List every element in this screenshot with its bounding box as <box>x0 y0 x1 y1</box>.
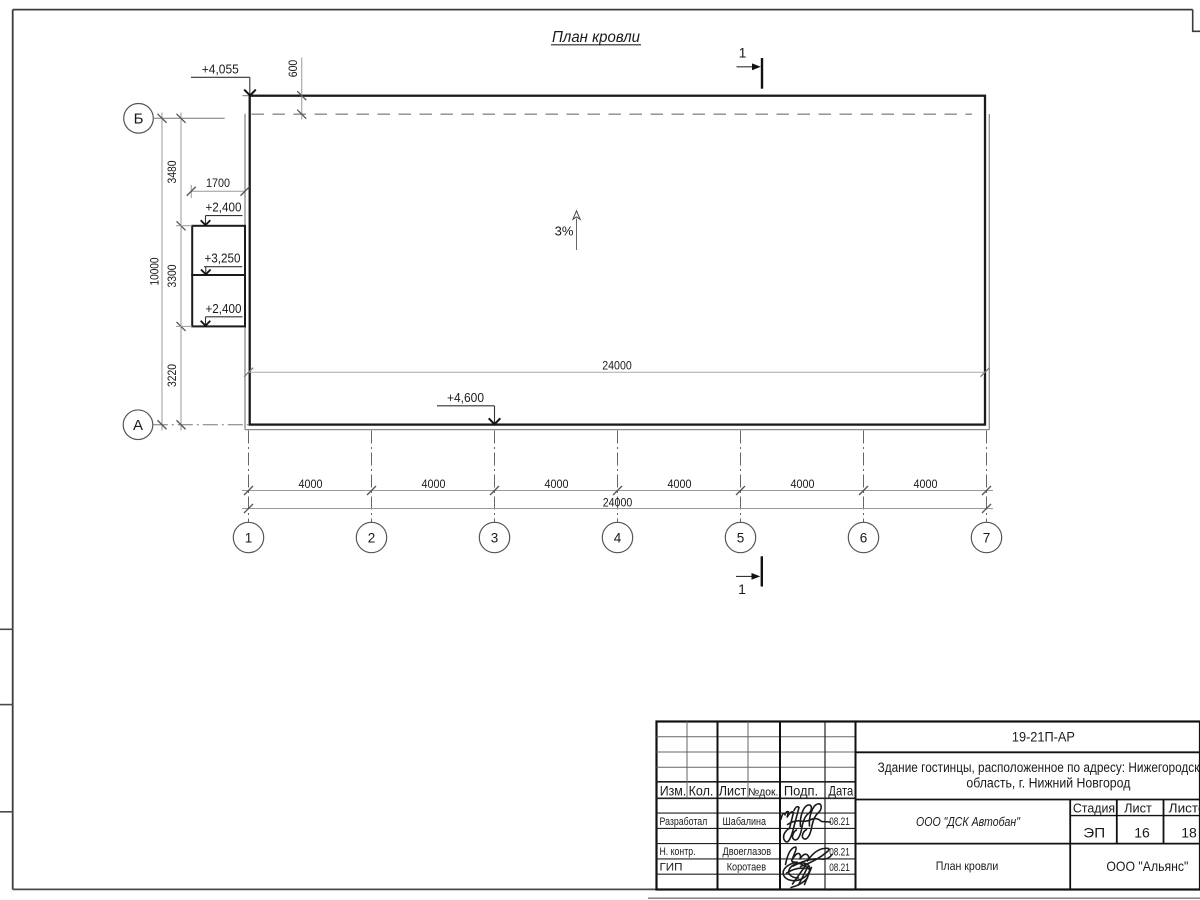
svg-text:ООО "Альянс": ООО "Альянс" <box>1106 858 1188 874</box>
svg-text:План кровли: План кровли <box>552 29 640 46</box>
svg-text:1700: 1700 <box>206 178 230 190</box>
svg-text:№док.: №док. <box>748 786 778 798</box>
svg-text:Здание гостинцы, расположенное: Здание гостинцы, расположенное по адресу… <box>878 760 1200 775</box>
svg-text:2: 2 <box>368 530 376 545</box>
svg-text:Листов: Листов <box>1169 800 1200 815</box>
svg-text:План кровли: План кровли <box>936 859 999 873</box>
svg-text:Б: Б <box>134 111 144 128</box>
svg-text:Лист: Лист <box>719 783 747 798</box>
svg-text:А: А <box>133 417 143 434</box>
svg-text:3480: 3480 <box>167 161 179 184</box>
svg-text:3%: 3% <box>555 224 574 239</box>
svg-text:7: 7 <box>983 530 991 545</box>
svg-text:Н. контр.: Н. контр. <box>660 846 696 858</box>
svg-text:Стадия: Стадия <box>1073 800 1115 815</box>
svg-text:3300: 3300 <box>167 265 179 288</box>
svg-text:3: 3 <box>491 530 499 545</box>
svg-text:+2,400: +2,400 <box>206 199 242 214</box>
svg-text:4000: 4000 <box>545 479 569 491</box>
svg-text:10000: 10000 <box>149 258 161 286</box>
svg-text:Шабалина: Шабалина <box>723 816 767 828</box>
svg-text:4000: 4000 <box>299 479 323 491</box>
svg-text:4: 4 <box>614 530 622 545</box>
svg-text:Подп.: Подп. <box>784 783 818 798</box>
svg-text:1: 1 <box>245 530 253 545</box>
svg-text:6: 6 <box>860 530 868 545</box>
svg-text:19-21П-АР: 19-21П-АР <box>1012 729 1075 744</box>
svg-text:08.21: 08.21 <box>829 862 850 874</box>
svg-text:ООО "ДСК Автобан": ООО "ДСК Автобан" <box>916 815 1020 829</box>
svg-text:18: 18 <box>1181 825 1197 841</box>
svg-text:+2,400: +2,400 <box>206 301 242 316</box>
svg-text:Разработал: Разработал <box>660 816 708 828</box>
svg-text:4000: 4000 <box>791 479 815 491</box>
svg-text:+4,600: +4,600 <box>447 390 484 405</box>
svg-text:08.21: 08.21 <box>829 816 850 828</box>
svg-text:4000: 4000 <box>668 479 692 491</box>
svg-text:5: 5 <box>737 530 745 545</box>
svg-text:Коротаев: Коротаев <box>727 861 767 873</box>
svg-text:3220: 3220 <box>167 364 179 387</box>
svg-text:4000: 4000 <box>422 479 446 491</box>
svg-text:Изм.: Изм. <box>660 783 687 798</box>
svg-text:область, г. Нижний Новгород: область, г. Нижний Новгород <box>966 776 1130 791</box>
svg-text:+4,055: +4,055 <box>202 62 239 77</box>
svg-text:Кол.: Кол. <box>689 783 714 798</box>
svg-text:Лист: Лист <box>1124 800 1152 815</box>
svg-text:08.21: 08.21 <box>829 847 850 859</box>
svg-text:ГИП: ГИП <box>660 861 683 873</box>
svg-text:Двоеглазов: Двоеглазов <box>723 846 772 858</box>
svg-text:16: 16 <box>1134 825 1150 841</box>
svg-text:1: 1 <box>739 45 747 61</box>
svg-text:1: 1 <box>738 581 746 597</box>
svg-text:+3,250: +3,250 <box>205 250 241 265</box>
svg-text:24000: 24000 <box>602 360 632 372</box>
svg-text:24000: 24000 <box>603 498 633 510</box>
svg-text:Дата: Дата <box>828 783 853 798</box>
svg-text:600: 600 <box>288 60 300 78</box>
svg-text:ЭП: ЭП <box>1083 825 1105 841</box>
svg-text:4000: 4000 <box>914 479 938 491</box>
